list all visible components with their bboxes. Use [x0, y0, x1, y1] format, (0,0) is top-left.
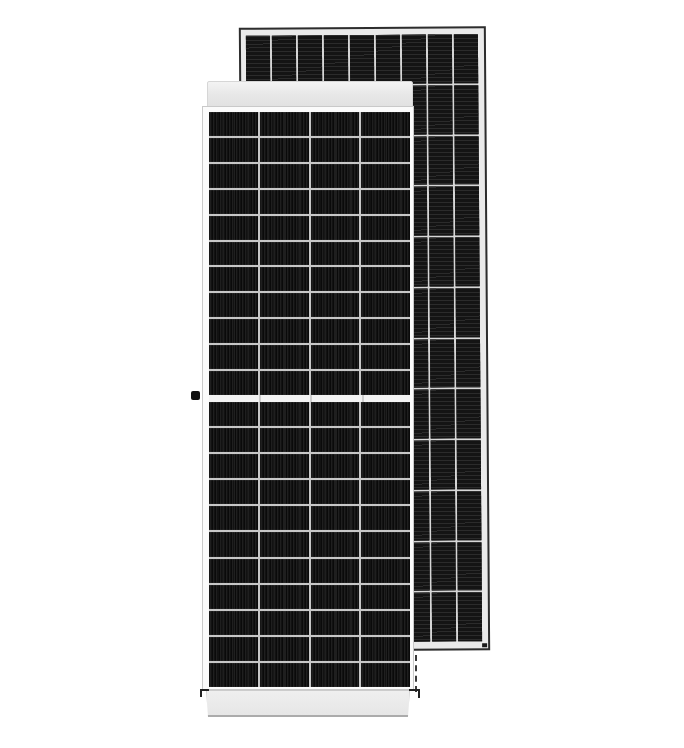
front-panel-bottom-frame — [206, 690, 410, 717]
solar-cell — [361, 371, 410, 395]
front-panel-lower-cell-grid — [209, 402, 410, 687]
solar-cell — [429, 237, 453, 286]
solar-cell — [209, 506, 258, 530]
solar-cell — [311, 506, 360, 530]
solar-cell — [260, 345, 309, 369]
solar-cell — [350, 35, 374, 84]
solar-cell — [260, 637, 309, 661]
solar-cell — [298, 35, 322, 84]
solar-cell — [361, 637, 410, 661]
solar-cell — [361, 454, 410, 478]
solar-cell — [430, 390, 454, 439]
solar-cell — [260, 164, 309, 188]
solar-cell — [361, 112, 410, 136]
solar-cell — [209, 345, 258, 369]
solar-cell — [311, 637, 360, 661]
solar-cell — [311, 345, 360, 369]
solar-cell — [361, 267, 410, 291]
solar-cell — [361, 506, 410, 530]
solar-cell — [246, 36, 270, 85]
solar-cell — [311, 164, 360, 188]
solar-cell — [361, 402, 410, 426]
solar-cell — [209, 637, 258, 661]
frame-corner-screw — [482, 643, 487, 647]
solar-cell — [361, 216, 410, 240]
solar-cell — [455, 136, 479, 185]
half-cell-center-gap — [209, 395, 410, 402]
solar-cell — [260, 138, 309, 162]
solar-cell — [209, 164, 258, 188]
solar-cell — [260, 216, 309, 240]
solar-cell — [311, 112, 360, 136]
solar-cell — [209, 138, 258, 162]
solar-cell — [361, 585, 410, 609]
solar-cell — [209, 267, 258, 291]
solar-cell — [454, 85, 478, 134]
solar-cell — [361, 293, 410, 317]
solar-cell — [431, 542, 455, 591]
solar-cell — [458, 592, 482, 641]
solar-cell — [456, 288, 480, 337]
solar-cell — [260, 532, 309, 556]
solar-cell — [260, 480, 309, 504]
solar-cell — [209, 428, 258, 452]
solar-cell — [260, 585, 309, 609]
mounting-knob — [191, 391, 200, 400]
solar-cell — [311, 585, 360, 609]
solar-cell — [311, 138, 360, 162]
solar-cell — [430, 288, 454, 337]
solar-cell — [260, 190, 309, 214]
solar-cell — [209, 454, 258, 478]
solar-cell — [361, 532, 410, 556]
solar-cell — [260, 267, 309, 291]
solar-cell — [260, 242, 309, 266]
solar-cell — [311, 559, 360, 583]
solar-cell — [361, 345, 410, 369]
solar-cell — [209, 611, 258, 635]
solar-cell — [260, 428, 309, 452]
front-panel-top-frame — [207, 81, 413, 107]
solar-cell — [428, 34, 452, 83]
solar-cell — [209, 319, 258, 343]
solar-cell — [361, 242, 410, 266]
solar-cell — [456, 389, 480, 438]
frame-corner-bracket-right — [409, 689, 420, 698]
solar-cell — [454, 34, 478, 83]
solar-cell — [209, 293, 258, 317]
solar-cell — [311, 293, 360, 317]
solar-cell — [260, 454, 309, 478]
solar-cell — [260, 293, 309, 317]
solar-cell — [361, 663, 410, 687]
solar-cell — [209, 112, 258, 136]
solar-cell — [260, 611, 309, 635]
solar-cell — [209, 532, 258, 556]
frame-corner-bracket-left — [200, 689, 209, 697]
solar-cell — [311, 402, 360, 426]
solar-cell — [402, 35, 426, 84]
solar-cell — [260, 371, 309, 395]
solar-cell — [209, 190, 258, 214]
solar-cell — [361, 428, 410, 452]
solar-cell — [430, 339, 454, 388]
solar-cell — [260, 319, 309, 343]
solar-cell — [361, 611, 410, 635]
solar-cell — [429, 136, 453, 185]
solar-cell — [361, 138, 410, 162]
solar-cell — [311, 480, 360, 504]
solar-cell — [361, 190, 410, 214]
product-photo — [0, 0, 684, 748]
solar-cell — [432, 593, 456, 642]
solar-cell — [428, 85, 452, 134]
front-panel-upper-cell-grid — [209, 112, 410, 395]
solar-cell — [260, 506, 309, 530]
front-panel-side-frame-edge — [415, 655, 417, 692]
solar-cell — [311, 532, 360, 556]
solar-cell — [260, 402, 309, 426]
solar-cell — [209, 216, 258, 240]
solar-cell — [376, 35, 400, 84]
solar-cell — [324, 35, 348, 84]
solar-cell — [457, 440, 481, 489]
solar-cell — [361, 319, 410, 343]
solar-cell — [311, 611, 360, 635]
solar-cell — [429, 187, 453, 236]
solar-cell — [361, 559, 410, 583]
solar-cell — [209, 559, 258, 583]
solar-cell — [455, 237, 479, 286]
solar-cell — [260, 112, 309, 136]
solar-cell — [431, 440, 455, 489]
solar-cell — [456, 339, 480, 388]
solar-cell — [311, 319, 360, 343]
solar-cell — [311, 428, 360, 452]
solar-cell — [361, 480, 410, 504]
solar-cell — [209, 663, 258, 687]
solar-cell — [311, 190, 360, 214]
front-solar-panel — [202, 106, 414, 690]
solar-cell — [272, 35, 296, 84]
solar-cell — [311, 371, 360, 395]
solar-cell — [311, 267, 360, 291]
solar-cell — [209, 371, 258, 395]
solar-cell — [457, 491, 481, 540]
solar-cell — [311, 663, 360, 687]
solar-cell — [209, 402, 258, 426]
solar-cell — [311, 216, 360, 240]
solar-cell — [260, 663, 309, 687]
solar-cell — [209, 480, 258, 504]
solar-cell — [455, 186, 479, 235]
solar-cell — [311, 242, 360, 266]
solar-cell — [260, 559, 309, 583]
solar-cell — [361, 164, 410, 188]
solar-cell — [431, 491, 455, 540]
solar-cell — [311, 454, 360, 478]
solar-cell — [209, 242, 258, 266]
solar-cell — [457, 542, 481, 591]
solar-cell — [209, 585, 258, 609]
